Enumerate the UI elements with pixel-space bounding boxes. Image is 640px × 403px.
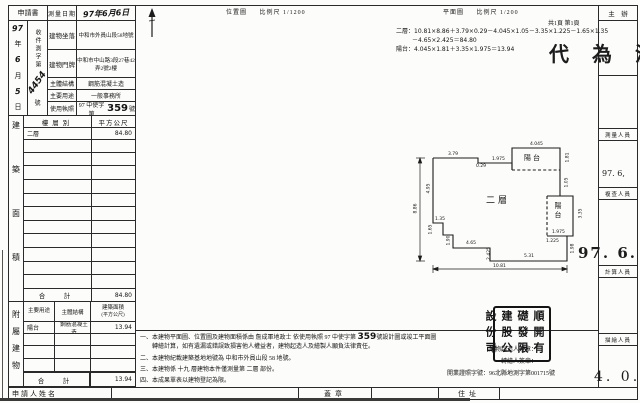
license-number: 359: [107, 103, 128, 114]
receipt-date-column: 97 年 6 月 5 日: [8, 20, 28, 116]
dimension-label: 4.95: [427, 183, 432, 193]
annex-side-strip: 附屬建物: [8, 301, 24, 387]
table-row: [24, 194, 135, 208]
note-line-4: 四、本成果單表以建物登記為限。: [140, 375, 230, 384]
floor-plan-header: 平面圖 比例尺 1/200: [443, 7, 519, 16]
floor-plan-scale: 比例尺 1/200: [477, 10, 519, 16]
annex-total-value: 13.94: [90, 372, 136, 387]
application-label: 申請書: [8, 5, 48, 21]
license-value: 97 中使字第 359 號: [76, 101, 136, 116]
seal-column-2: 開發股份: [498, 326, 546, 342]
table-row: [24, 234, 135, 248]
box-divider: [598, 75, 638, 76]
area-total-label: 合 計: [23, 288, 92, 302]
dimension-label: 1.98: [571, 243, 576, 253]
annex-total-label: 合 計: [23, 372, 90, 387]
table-row: [24, 221, 135, 235]
receipt-month: 6: [15, 55, 21, 64]
note-line-3: 三、本建物係 十九 層建物本件僅測量第 二層 部份。: [140, 364, 278, 373]
balcony-top-label: 陽台: [524, 153, 542, 163]
table-row: [24, 333, 135, 346]
dimension-label: 4.65: [466, 241, 476, 246]
page-count: 共1頁 第1頁: [548, 18, 580, 27]
main-floor-label: 二層: [486, 193, 510, 206]
site-value: 中和市外員山段58地號: [76, 20, 136, 50]
scan-edge-left: [2, 250, 3, 398]
site-label: 建物坐落: [47, 20, 77, 50]
dimension-label: 1.975: [552, 230, 565, 235]
official-calculator-label: 計算人員: [598, 265, 638, 278]
area-total-value: 84.80: [91, 288, 136, 302]
note-1-post: 號設計圖或竣工平面圖: [376, 335, 436, 341]
plan-dimension-layer: 二層 陽台 陽台 3.790.291.9754.0451.811.053.351…: [400, 138, 605, 288]
license-prefix: 97 中使字第: [77, 101, 106, 116]
dimension-label: 1.81: [566, 152, 571, 162]
dimension-label: 1.35: [435, 217, 445, 222]
annex-side-label: 附屬建物: [11, 310, 22, 378]
annex-structure-header: 主體結構: [54, 301, 91, 322]
dimension-label: 4.045: [530, 142, 543, 147]
dimension-label: 3.35: [579, 208, 584, 218]
location-map-title: 位置圖: [226, 10, 247, 16]
date-stamp-small: 97. 6,: [602, 169, 625, 178]
dimension-label: 1.975: [492, 157, 505, 162]
dimension-label: 8.86: [414, 203, 419, 213]
survey-date-value: 97年6月6日: [83, 6, 130, 19]
table-row: [24, 153, 135, 167]
month-char: 月: [15, 71, 22, 81]
dimension-label: 1.225: [546, 239, 559, 244]
receipt-year: 97: [12, 24, 24, 34]
survey-date-label: 測量日期: [47, 5, 77, 21]
approval-stamp: 代 為 決: [549, 38, 640, 67]
table-row: [24, 359, 135, 372]
form-right-border: [135, 5, 136, 387]
table-row: [24, 248, 135, 262]
table-row: [24, 139, 135, 153]
receipt-number-column: 收件測字第 4454 號: [27, 20, 48, 116]
address-field: [499, 387, 638, 400]
receipt-no-label: 收件測字第: [33, 29, 42, 69]
scan-edge-bottom: [0, 398, 470, 401]
empty-floor-rows: [23, 139, 136, 289]
official-drafter-label: 描繪人員: [598, 333, 638, 346]
area-side-label: 建築面積: [11, 121, 22, 297]
license-line: 開業證照字號：96北縣地測字第001715號: [447, 368, 555, 377]
table-row: [24, 275, 135, 289]
seal-column-3: 有限公司: [498, 342, 546, 358]
dimension-label: 10.81: [493, 264, 506, 269]
table-row: [24, 180, 135, 194]
date-stamp-bottom: 4. 0.: [594, 369, 640, 385]
dimension-label: 0.29: [476, 164, 486, 169]
dimension-label: 2.425: [487, 247, 492, 260]
dimension-label: 5.31: [524, 254, 534, 259]
note-line-2: 二、本建物紀載建築基地地號為 中和市外員山段 58 地號。: [140, 353, 295, 362]
table-row: [24, 262, 135, 276]
license-no-value: 96北縣地測字第001715號: [489, 371, 555, 377]
annex-area-header-1: 建築面積: [102, 305, 124, 312]
receipt-no-value: 4454: [27, 70, 48, 96]
address-value: 中和市中山路3段27巷42弄2號2樓: [76, 49, 136, 78]
formula-floor-line1: 二層：10.81×8.86＋3.79×0.29－4.045×1.05－3.35×…: [396, 27, 608, 36]
dimension-label: 1.05: [565, 177, 570, 187]
table-row: [24, 207, 135, 221]
date-stamp-large: 97. 6.: [578, 244, 637, 262]
table-row: [24, 166, 135, 180]
company-seal: 順礎建設 開發股份 有限公司: [493, 306, 551, 362]
area-side-strip: 建築面積: [8, 115, 24, 302]
address-label: 建物門牌: [47, 49, 77, 78]
receipt-no-suffix: 號: [34, 98, 40, 107]
north-arrow-icon: [144, 7, 160, 39]
location-map-header: 位置圖 比例尺 1/1200: [226, 7, 306, 16]
seal-column-1: 順礎建設: [498, 310, 546, 326]
year-char: 年: [15, 39, 22, 49]
official-reviewer-label: 複查人員: [598, 187, 638, 200]
balcony-right-label: 陽台: [553, 202, 563, 220]
dimension-label: 1.90: [447, 235, 452, 245]
annex-use-header: 主要用途: [23, 301, 55, 322]
receipt-day: 5: [15, 87, 21, 96]
column-divider: [54, 301, 55, 372]
official-surveyor-label: 測量人員: [598, 128, 638, 141]
scanned-survey-document: 申請書 測量日期 97年6月6日 97 年 6 月 5 日 收件測字第 4454…: [0, 0, 640, 403]
column-divider: [91, 115, 92, 302]
note-line-1-cont: 轉繪計算，如有遺漏或錯誤致損害他人權益者，建物起造人及繪製人願負法律責任。: [152, 341, 374, 350]
annex-area-header-2: (平方公尺): [101, 312, 124, 319]
dimension-label: 3.79: [448, 152, 458, 157]
location-map-scale: 比例尺 1/1200: [260, 10, 306, 16]
empty-annex-rows: [23, 333, 136, 372]
license-no-label: 開業證照字號：: [447, 371, 489, 377]
table-row: [24, 346, 135, 359]
day-char: 日: [15, 102, 22, 112]
floor-plan-title: 平面圖: [443, 10, 464, 16]
official-chief-label: 主 辦: [598, 5, 638, 21]
license-label: 使用執照: [47, 101, 77, 116]
annex-area-header: 建築面積 (平方公尺): [90, 301, 136, 322]
dimension-label: 1.65: [429, 224, 434, 234]
